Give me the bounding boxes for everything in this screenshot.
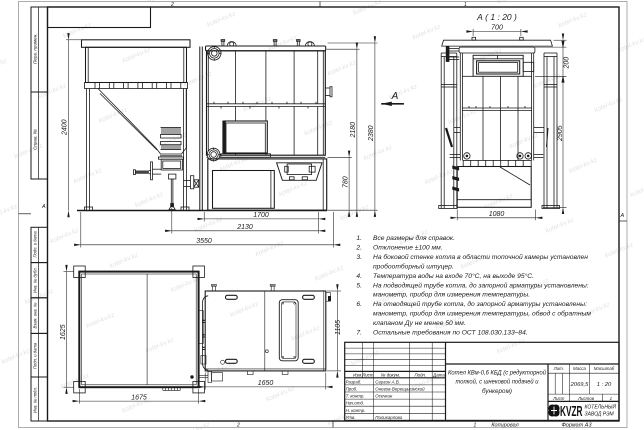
svg-text:4.: 4. <box>356 273 362 280</box>
svg-text:На отводящей трубе котла, до з: На отводящей трубе котла, до запорной ар… <box>373 300 587 308</box>
svg-text:манометр, прибор для измерения: манометр, прибор для измерения температу… <box>373 291 530 299</box>
svg-text:1625: 1625 <box>60 324 67 340</box>
svg-text:А: А <box>620 213 625 219</box>
svg-text:1 : 20: 1 : 20 <box>597 382 612 388</box>
svg-text:А ( 1 : 20 ): А ( 1 : 20 ) <box>476 12 517 22</box>
svg-text:КОТЕЛЬНЫЙ: КОТЕЛЬНЫЙ <box>585 403 617 411</box>
svg-text:1675: 1675 <box>131 394 147 401</box>
svg-text:KVZR: KVZR <box>560 404 583 420</box>
svg-text:2: 2 <box>170 2 174 8</box>
svg-text:А: А <box>391 91 399 102</box>
svg-text:№ докум.: № докум. <box>381 372 400 377</box>
svg-text:780: 780 <box>342 176 349 188</box>
svg-text:3.: 3. <box>356 254 362 261</box>
svg-text:1: 1 <box>473 422 476 428</box>
svg-text:Инв. № подл.: Инв. № подл. <box>33 387 38 413</box>
svg-text:2180: 2180 <box>350 122 357 139</box>
svg-text:Онегов-Верещагинский: Онегов-Верещагинский <box>375 387 425 392</box>
svg-text:Лист: Лист <box>361 372 374 377</box>
svg-text:На боковой стенке котла в обла: На боковой стенке котла в области топочн… <box>373 253 588 261</box>
svg-text:Осечкин: Осечкин <box>375 394 393 399</box>
svg-text:Лист: Лист <box>552 396 565 401</box>
svg-text:Сергин А.В.: Сергин А.В. <box>375 379 400 384</box>
svg-text:1080: 1080 <box>489 211 505 218</box>
svg-text:Масса: Масса <box>573 366 587 371</box>
svg-text:1700: 1700 <box>253 212 269 219</box>
svg-text:1.: 1. <box>356 235 362 242</box>
svg-text:2905: 2905 <box>557 125 564 142</box>
svg-text:Все размеры для справок.: Все размеры для справок. <box>373 234 455 242</box>
svg-text:Подп.: Подп. <box>414 372 426 377</box>
svg-text:200: 200 <box>564 57 571 70</box>
svg-text:Листов: Листов <box>577 396 595 401</box>
svg-text:2380: 2380 <box>368 125 375 142</box>
svg-text:Остальные требования по ОСТ 10: Остальные требования по ОСТ 108.030.133–… <box>373 329 528 337</box>
svg-text:Подп. и дата: Подп. и дата <box>33 342 38 369</box>
svg-text:1: 1 <box>464 2 467 8</box>
svg-text:Масштаб: Масштаб <box>594 366 615 371</box>
svg-text:6.: 6. <box>356 301 362 308</box>
svg-text:Проб.: Проб. <box>346 387 358 392</box>
svg-text:700: 700 <box>491 25 503 32</box>
svg-text:2.: 2. <box>355 245 362 252</box>
svg-text:1650: 1650 <box>258 380 274 387</box>
svg-text:Н. контр.: Н. контр. <box>346 408 366 413</box>
svg-text:Поликарпова: Поликарпова <box>375 415 402 420</box>
svg-text:Копировал: Копировал <box>491 422 518 428</box>
svg-text:Разраб.: Разраб. <box>346 379 362 384</box>
svg-text:Изм.: Изм. <box>353 372 362 377</box>
svg-text:Справ. №: Справ. № <box>32 129 37 150</box>
svg-text:Взам. инв. №: Взам. инв. № <box>33 302 38 328</box>
svg-text:ЗАВОД РЭМ: ЗАВОД РЭМ <box>585 412 615 418</box>
svg-text:Котел КВм-0,6 КБД (с редукторн: Котел КВм-0,6 КБД (с редукторной <box>448 368 546 376</box>
svg-text:Перв. примен.: Перв. примен. <box>32 33 37 64</box>
svg-text:2069,5: 2069,5 <box>570 382 590 388</box>
svg-text:Нач.отд.: Нач.отд. <box>346 401 365 406</box>
svg-text:Формат А3: Формат А3 <box>561 422 592 428</box>
svg-text:На подводящей трубе котла, до: На подводящей трубе котла, до запорной а… <box>373 281 589 289</box>
svg-text:бункером): бункером) <box>482 387 512 395</box>
svg-text:3550: 3550 <box>196 238 212 245</box>
svg-text:клапаном Ду не менее 50 мм.: клапаном Ду не менее 50 мм. <box>373 320 466 327</box>
svg-text:Лит.: Лит. <box>553 366 564 371</box>
svg-text:Дата: Дата <box>432 372 445 377</box>
svg-text:1105: 1105 <box>335 320 342 335</box>
svg-text:2400: 2400 <box>62 119 69 136</box>
svg-text:Температура воды на входе 70°С: Температура воды на входе 70°С, на выход… <box>373 272 534 280</box>
svg-text:А: А <box>41 204 46 210</box>
svg-text:Инв. № дубл.: Инв. № дубл. <box>33 267 38 293</box>
svg-text:Т. контр.: Т. контр. <box>346 394 365 399</box>
svg-text:5.: 5. <box>356 282 362 289</box>
svg-text:Отклонение ±100 мм.: Отклонение ±100 мм. <box>373 245 443 252</box>
svg-text:2130: 2130 <box>236 224 253 231</box>
svg-text:Утв.: Утв. <box>346 415 356 420</box>
svg-text:топкой, с шнековой подачей и: топкой, с шнековой подачей и <box>456 378 539 386</box>
svg-text:2: 2 <box>236 423 240 429</box>
svg-text:Подп. и дата: Подп. и дата <box>33 231 38 258</box>
svg-text:7.: 7. <box>356 330 362 337</box>
svg-text:манометр, прибор для измерения: манометр, прибор для измерения температу… <box>373 310 591 318</box>
svg-text:пробоотборный штуцер.: пробоотборный штуцер. <box>373 262 454 270</box>
